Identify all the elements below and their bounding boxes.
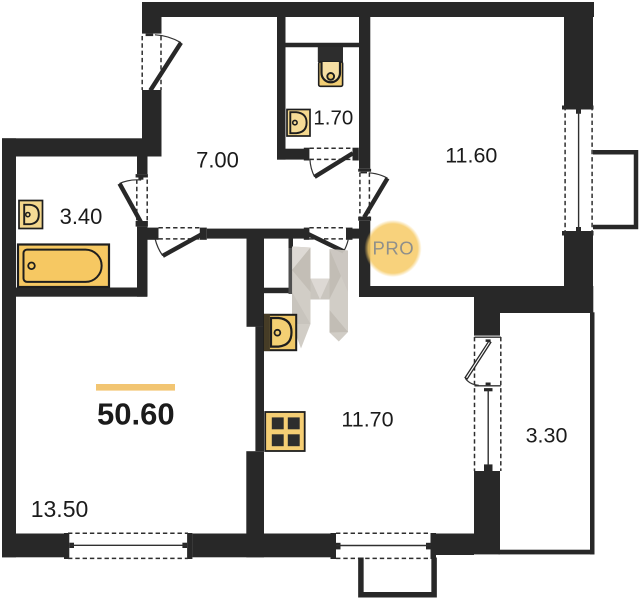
svg-text:3.40: 3.40	[60, 204, 103, 229]
svg-text:3.30: 3.30	[526, 423, 568, 447]
svg-text:PRO: PRO	[373, 237, 415, 258]
svg-text:1.70: 1.70	[313, 107, 353, 130]
svg-text:13.50: 13.50	[31, 496, 89, 522]
svg-text:11.60: 11.60	[445, 144, 497, 168]
svg-text:50.60: 50.60	[97, 396, 175, 431]
svg-text:7.00: 7.00	[196, 148, 239, 173]
svg-text:11.70: 11.70	[341, 407, 393, 431]
